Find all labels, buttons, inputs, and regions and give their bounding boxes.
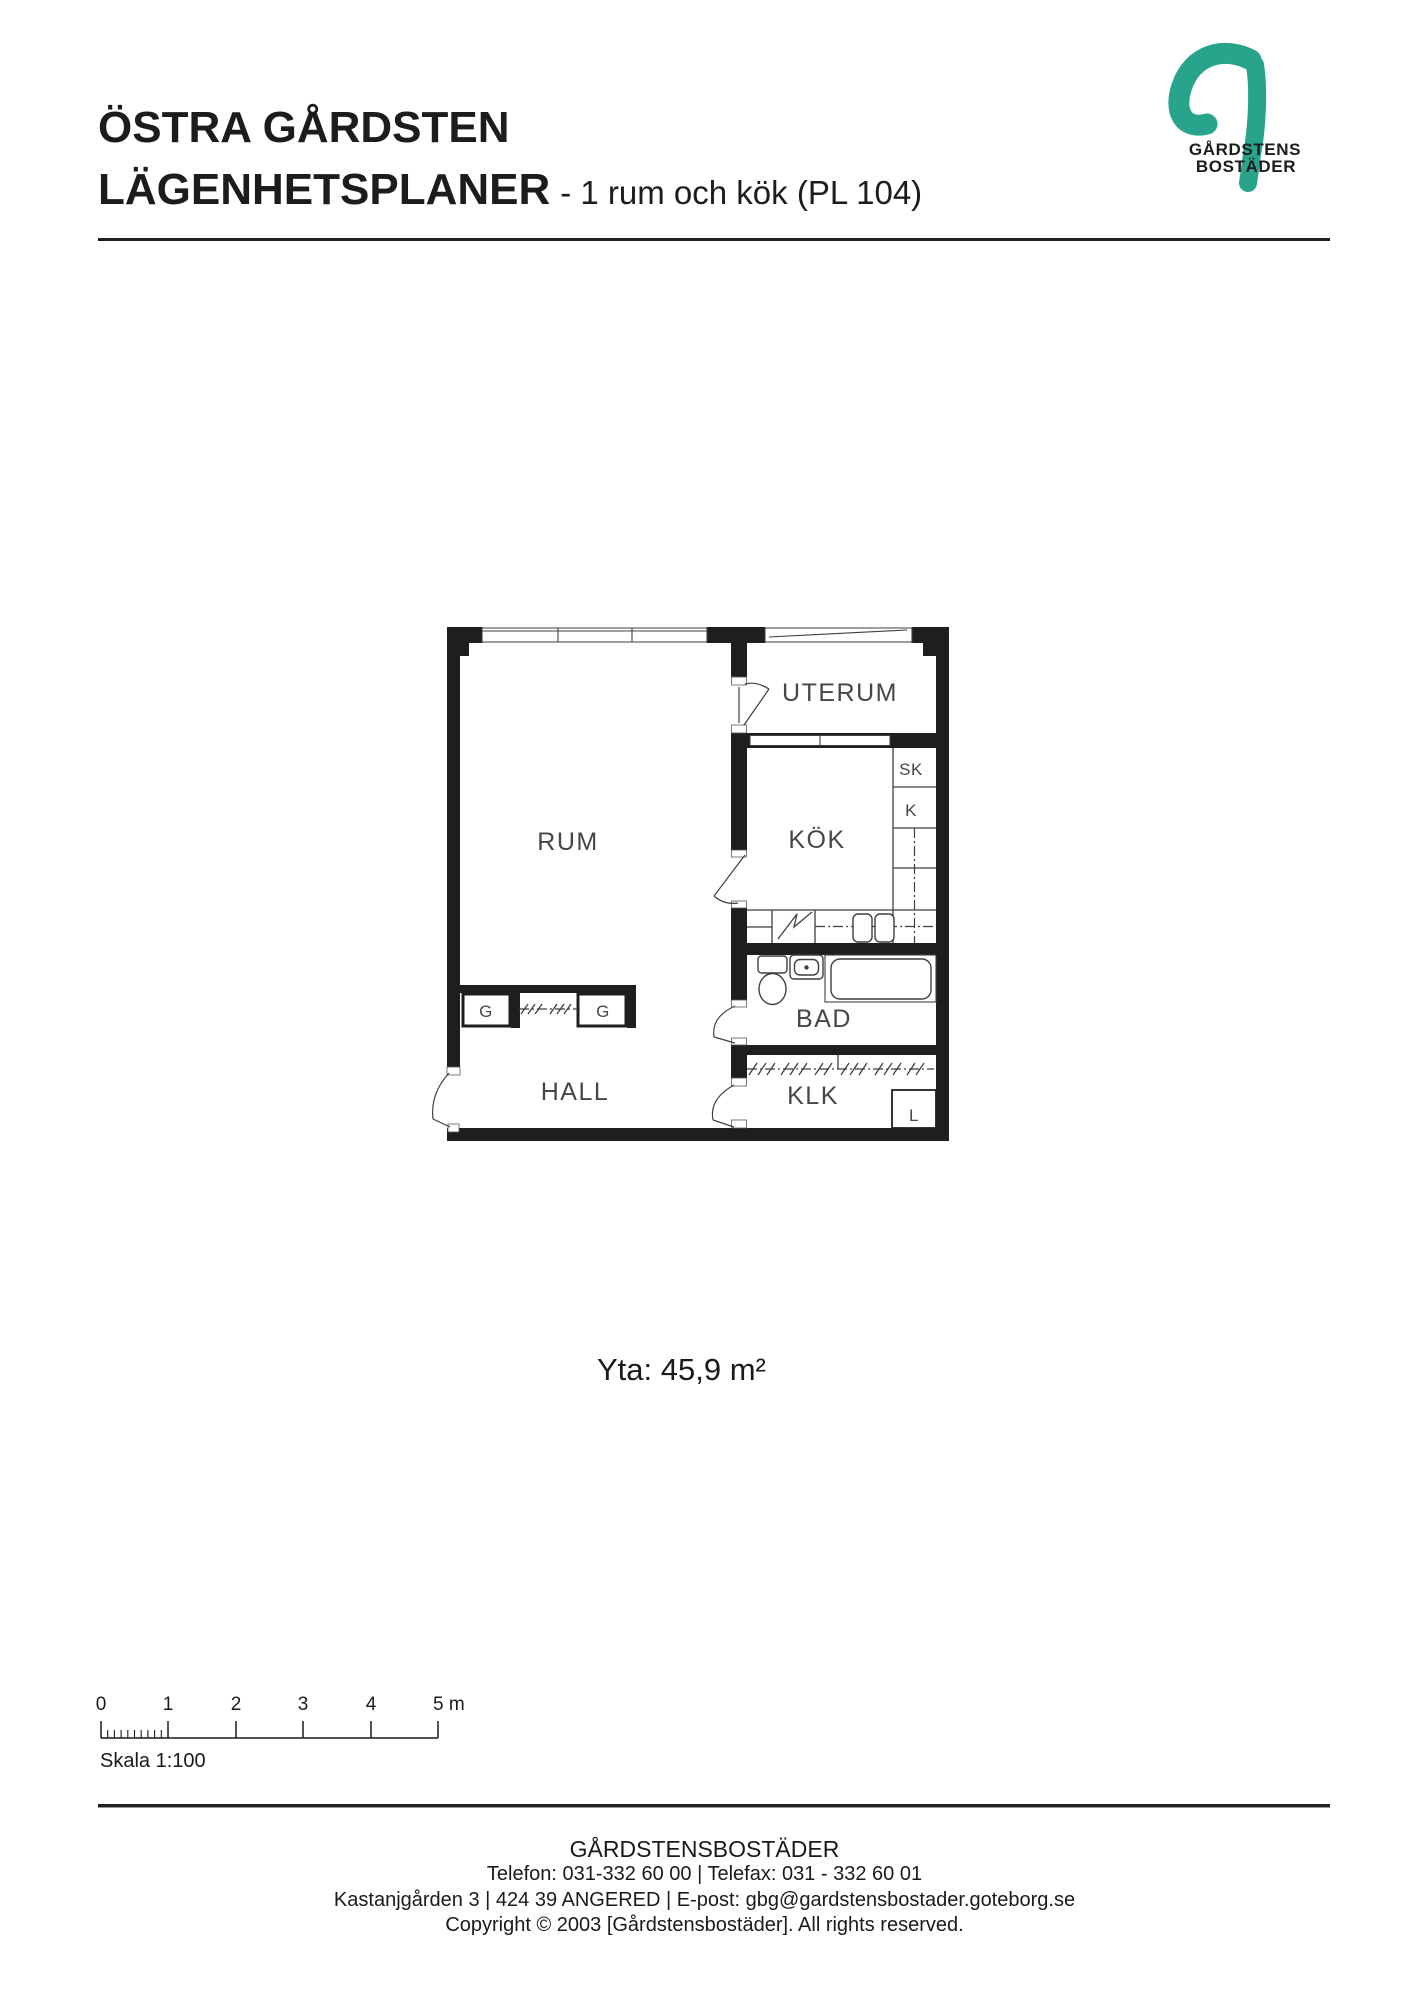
page-title-line1: ÖSTRA GÅRDSTEN <box>98 106 510 150</box>
area-text: Yta: 45,9 m² <box>597 1352 766 1388</box>
scale-tick-labels: 0 1 2 3 4 5 m <box>96 1694 465 1715</box>
klk-door <box>712 1085 734 1127</box>
footer-contact: Telefon: 031-332 60 00 | Telefax: 031 - … <box>0 1863 1409 1886</box>
footer-address: Kastanjgården 3 | 424 39 ANGERED | E-pos… <box>0 1889 1409 1912</box>
footer-copyright: Copyright © 2003 [Gårdstensbostäder]. Al… <box>0 1914 1409 1937</box>
page-subtitle: - 1 rum och kök (PL 104) <box>560 174 922 211</box>
door-jambs <box>447 677 747 1132</box>
kok-door <box>714 855 745 903</box>
scale-label-5m: 5 m <box>433 1694 465 1715</box>
scale-label-2: 2 <box>231 1694 242 1715</box>
washbasin-icon <box>790 955 823 979</box>
room-label-kok: KÖK <box>788 826 845 854</box>
wardrobe-label-g1: G <box>479 1002 493 1021</box>
kitchen-counter <box>747 910 936 943</box>
scale-ruler <box>101 1721 438 1738</box>
closet-label-l: L <box>909 1106 919 1125</box>
scale-label-0: 0 <box>96 1694 107 1715</box>
scale-label-3: 3 <box>298 1694 309 1715</box>
room-label-klk: KLK <box>787 1082 839 1110</box>
company-logo: GÅRDSTENS BOSTÄDER <box>1155 42 1315 192</box>
footer-company: GÅRDSTENSBOSTÄDER <box>0 1836 1409 1863</box>
page-title-line2: LÄGENHETSPLANER- 1 rum och kök (PL 104) <box>98 168 922 215</box>
header-divider <box>98 238 1330 241</box>
room-label-hall: HALL <box>541 1078 610 1106</box>
doors <box>433 683 769 1127</box>
closet-label-sk: SK <box>899 760 923 779</box>
stove-icon <box>853 914 894 942</box>
room-label-bad: BAD <box>796 1005 852 1033</box>
floorplan-drawing: UTERUM RUM KÖK BAD HALL KLK SK K G G L <box>447 623 949 1141</box>
page-title-line2-main: LÄGENHETSPLANER <box>98 165 550 214</box>
document-page: ÖSTRA GÅRDSTEN LÄGENHETSPLANER- 1 rum oc… <box>0 0 1409 2000</box>
rum-window <box>482 627 707 643</box>
klk-interior <box>747 1055 936 1128</box>
footer-divider <box>98 1804 1330 1808</box>
room-label-rum: RUM <box>537 828 598 856</box>
toilet-icon <box>758 956 787 1005</box>
bathroom-fixtures <box>758 955 936 1005</box>
scale-caption: Skala 1:100 <box>100 1750 206 1773</box>
sink-icon <box>778 912 812 939</box>
entry-door <box>433 1073 450 1127</box>
scale-label-1: 1 <box>163 1694 174 1715</box>
wardrobe-label-g2: G <box>596 1002 610 1021</box>
uterum-door <box>739 683 769 725</box>
bathtub-icon <box>825 955 936 1002</box>
closet-label-k: K <box>905 801 917 820</box>
kitchen-window <box>750 735 890 746</box>
scale-label-4: 4 <box>366 1694 377 1715</box>
hall-rod-symbol <box>519 1004 577 1014</box>
room-label-uterum: UTERUM <box>782 679 898 707</box>
uterum-window <box>765 627 912 643</box>
bad-door <box>714 1006 735 1043</box>
logo-wordmark-line2: BOSTÄDER <box>1196 157 1296 176</box>
